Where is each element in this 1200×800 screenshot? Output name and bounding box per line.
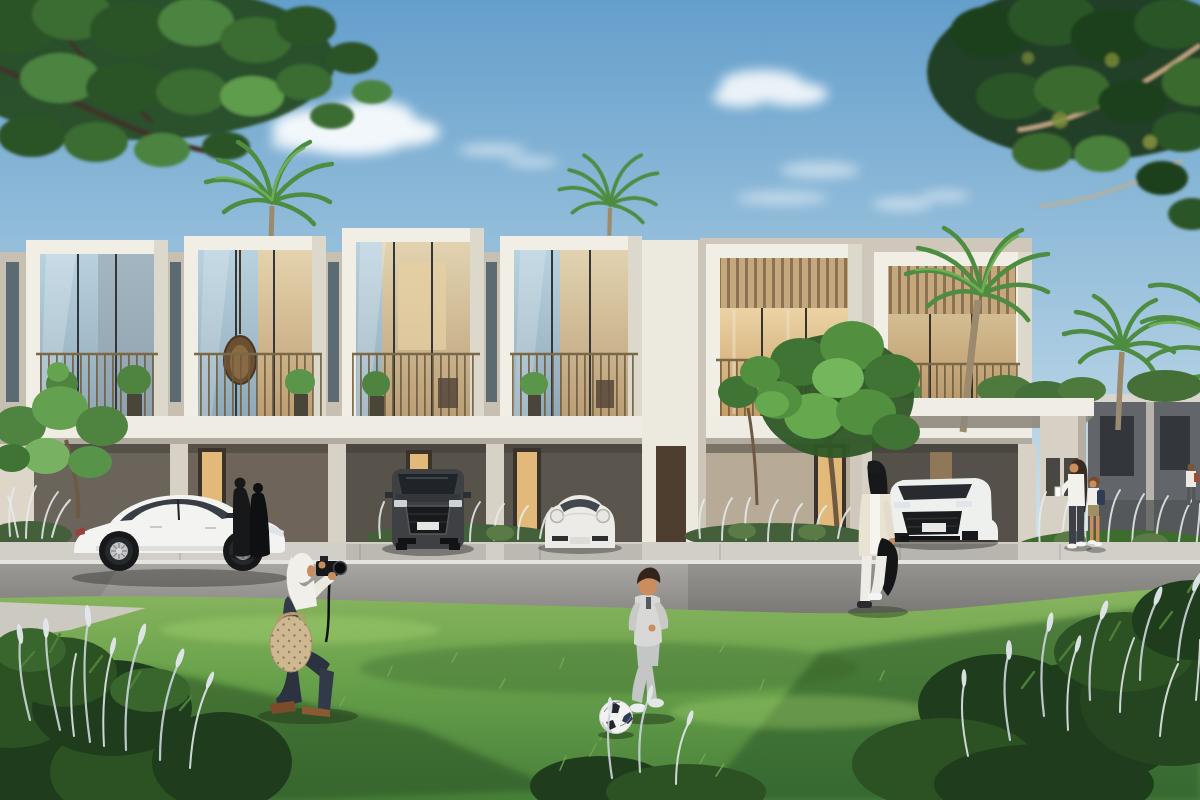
curb <box>0 560 1200 564</box>
bay-3 <box>342 228 484 420</box>
hand <box>328 572 336 580</box>
slot-window <box>486 262 497 402</box>
child-backpack <box>1097 490 1105 505</box>
urus-headlight <box>956 501 972 507</box>
pier <box>1018 444 1036 548</box>
license-plate <box>922 523 946 532</box>
balcony-plant <box>362 371 390 397</box>
child-shorts <box>1088 505 1099 516</box>
pier <box>328 444 346 548</box>
walker-shoe <box>857 601 872 608</box>
balcony-plant <box>117 365 151 395</box>
balcony-plant <box>285 369 315 395</box>
walker-shoe <box>868 593 882 600</box>
boy-hand <box>649 625 656 632</box>
face <box>307 565 315 577</box>
far-right-townhouses <box>1088 394 1200 552</box>
sports-car-headlight <box>551 510 564 523</box>
suv-headlight <box>394 500 407 507</box>
mother-jeans <box>1069 506 1076 544</box>
timber-louvre-screen <box>720 258 848 308</box>
timber-entry-door <box>656 446 686 544</box>
hand <box>319 562 326 569</box>
slot-window <box>328 262 339 402</box>
render-stage <box>0 0 1200 800</box>
license-plate <box>417 522 439 530</box>
shaded-window <box>1160 416 1190 470</box>
mother-top <box>1068 474 1085 506</box>
balcony-chair <box>596 380 614 408</box>
sports-car-headlight <box>597 510 610 523</box>
vehicle-white-suv <box>886 478 998 550</box>
slot-window <box>6 262 19 402</box>
bay-2 <box>184 236 326 420</box>
football <box>600 701 634 734</box>
bay-4 <box>500 236 642 420</box>
scene-canvas <box>0 0 1200 800</box>
shirt-placket <box>646 597 651 609</box>
balcony-plant <box>520 372 548 396</box>
lawn-shadow <box>360 642 860 694</box>
balcony-chair <box>438 378 458 408</box>
urus-windshield <box>898 484 972 500</box>
vehicle-dark-suv <box>382 469 474 556</box>
sunlit-patch <box>670 696 930 728</box>
suv-headlight <box>449 500 462 507</box>
urus-headlight <box>894 502 910 508</box>
slot-window <box>170 262 181 402</box>
camera-lens <box>334 562 347 575</box>
license-plate <box>570 537 590 544</box>
small-backpack <box>1194 473 1199 482</box>
phone <box>1055 487 1061 497</box>
